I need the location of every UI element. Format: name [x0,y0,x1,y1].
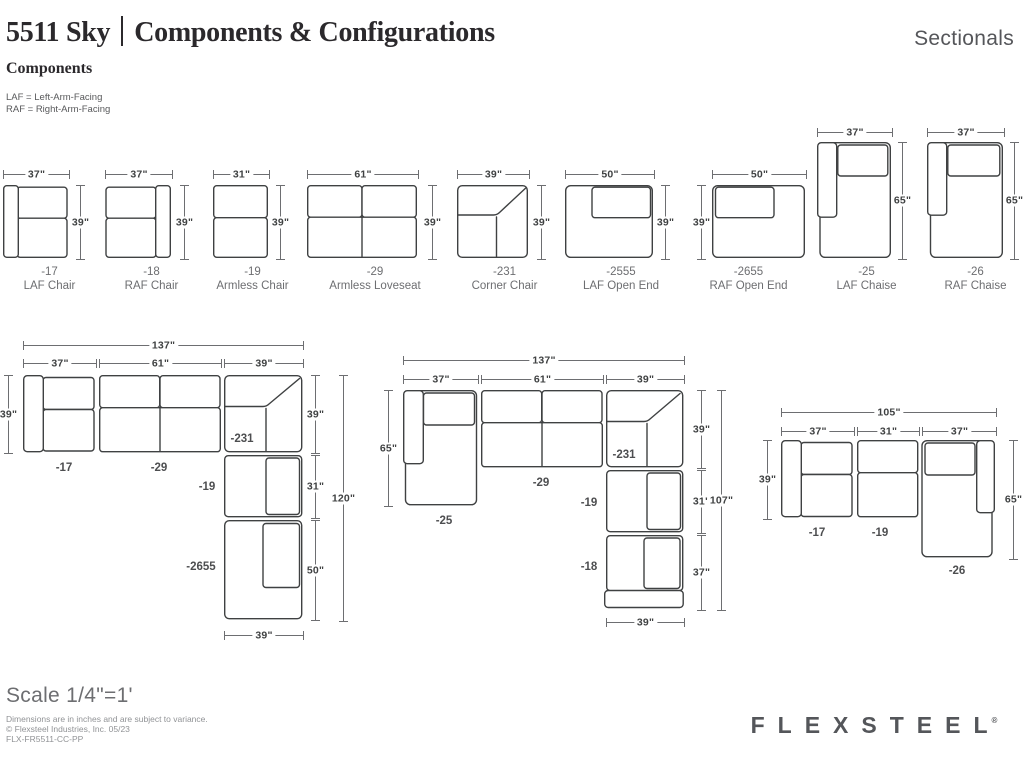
height-dim: 65" [1010,142,1019,260]
width-dim: 31" [213,170,270,179]
piece-label: -231 [230,433,253,445]
dim-label: 107" [707,494,736,506]
width-dim: 50" [712,170,807,179]
component-code: -2555 [565,265,677,279]
laf-chair-drawing [3,185,68,258]
dim-label: 120" [329,492,358,504]
dim-label: 137" [149,339,178,351]
dim-label: 65" [1002,494,1024,506]
page-title: Components & Configurations [134,17,495,48]
fine-print: Dimensions are in inches and are subject… [6,714,208,744]
component-code: -19 [213,265,292,279]
dim-label: 39" [634,373,657,385]
height-dim: 39" [661,185,670,260]
height-dim: 39" [180,185,189,260]
component-name: LAF Chair [3,279,96,293]
dim-label: 50" [304,564,327,576]
left-height-dim: 39" [763,440,772,520]
component-label: -29 Armless Loveseat [307,265,443,293]
piece-label: -26 [949,565,966,577]
dim-label: 31" [877,425,900,437]
dim-label: 37" [806,425,829,437]
width-dim: 39" [457,170,530,179]
scale-note: Scale 1/4"=1' [6,684,133,708]
component-name: RAF Open End [692,279,805,293]
width-dim: 61" [307,170,419,179]
height-dim: 39" [76,185,85,260]
legend-raf: RAF = Right-Arm-Facing [6,104,110,116]
dim-label: 39" [252,357,275,369]
dim-label: 37" [948,425,971,437]
piece-label: -17 [56,462,73,474]
height-dim: 39" [537,185,546,260]
component-name: RAF Chaise [927,279,1024,293]
bottom-width-dim: 39" [606,618,685,627]
component-label: -17 LAF Chair [3,265,96,293]
height-dim-label: 65" [1003,195,1024,207]
width-dim: 50" [565,170,655,179]
component-label: -2555 LAF Open End [565,265,677,293]
component-code: -29 [307,265,443,279]
component-code: -17 [3,265,96,279]
segment-dim: 39" [606,375,685,384]
total-width-dim: 105" [781,408,997,417]
dim-label: 61" [531,373,554,385]
total-width-dim: 137" [403,356,685,365]
category-label: Sectionals [914,27,1014,51]
height-dim: 39" [276,185,285,260]
corner-chair-drawing [457,185,528,258]
piece-label: -19 [581,497,598,509]
width-dim: 37" [927,128,1005,137]
piece-label: -29 [533,477,550,489]
component-label: -26 RAF Chaise [927,265,1024,293]
dim-label: 39" [304,408,327,420]
height-dim-label: 65" [891,195,914,207]
width-dim-label: 50" [748,168,771,180]
segment-dim: 61" [99,359,222,368]
piece-label: -231 [612,449,635,461]
width-dim: 37" [3,170,70,179]
width-dim-label: 50" [598,168,621,180]
component-name: Armless Loveseat [307,279,443,293]
height-dim-label: 39" [530,216,553,228]
right-height-dim: 50" [311,520,320,621]
component-name: RAF Chair [105,279,198,293]
dim-label: 39" [0,408,20,420]
piece-label: -18 [581,561,598,573]
component-label: -25 LAF Chaise [817,265,916,293]
configuration-3-drawing [781,440,995,558]
height-dim: 39" [697,185,706,260]
configuration-1: 137" 37" 61" 39" 39" -17 -29 [0,338,360,648]
piece-label: -29 [151,462,168,474]
legend-laf: LAF = Left-Arm-Facing [6,92,110,104]
width-dim: 37" [817,128,893,137]
registered-mark: ® [992,716,998,725]
piece-label: -2655 [186,561,215,573]
width-dim-label: 39" [482,168,505,180]
height-dim-label: 39" [421,216,444,228]
components-heading: Components [6,60,92,78]
component-code: -231 [457,265,552,279]
right-height-dim: 65" [1009,440,1018,560]
width-dim: 37" [105,170,173,179]
spec-sheet-page: 5511 SkyComponents & Configurations Sect… [0,0,1024,768]
right-height-dim: 37" [697,535,706,611]
dim-label: 31" [304,481,327,493]
height-dim-label: 39" [269,216,292,228]
dim-label: 39" [252,629,275,641]
dim-label: 61" [149,357,172,369]
bottom-width-dim: 39" [224,631,304,640]
disclaimer-line: Dimensions are in inches and are subject… [6,714,208,724]
total-width-dim: 137" [23,341,304,350]
segment-dim: 37" [922,427,997,436]
component-name: LAF Open End [565,279,677,293]
dim-label: 105" [874,406,903,418]
component-name: LAF Chaise [817,279,916,293]
piece-label: -25 [436,515,453,527]
flexsteel-logo: FLEXSTEEL® [735,712,1013,739]
segment-dim: 61" [481,375,604,384]
left-height-dim: 65" [384,390,393,507]
document-code: FLX-FR5511-CC-PP [6,734,208,744]
dim-label: 39" [690,423,713,435]
dim-label: 65" [377,442,400,454]
width-dim-label: 37" [25,168,48,180]
configuration-2-drawing [403,390,683,609]
width-dim-label: 37" [127,168,150,180]
component-label: -2655 RAF Open End [692,265,805,293]
model-number: 5511 Sky [6,17,110,48]
title-divider [121,16,123,46]
raf-chair-drawing [105,185,171,258]
height-dim-label: 39" [654,216,677,228]
raf-chaise-drawing [927,142,1003,258]
piece-label: -19 [872,527,889,539]
component-code: -25 [817,265,916,279]
left-height-dim: 39" [4,375,13,454]
right-height-dim: 31" [697,470,706,534]
armless-loveseat-drawing [307,185,417,258]
configuration-1-drawing [23,375,302,620]
height-dim-label: 39" [69,216,92,228]
dim-label: 37" [690,567,713,579]
width-dim-label: 61" [351,168,374,180]
piece-label: -17 [809,527,826,539]
component-name: Armless Chair [213,279,292,293]
height-dim: 65" [898,142,907,260]
piece-label: -19 [199,481,216,493]
width-dim-label: 37" [843,126,866,138]
laf-chaise-drawing [817,142,891,258]
component-label: -19 Armless Chair [213,265,292,293]
total-height-dim: 107" [717,390,726,611]
component-code: -18 [105,265,198,279]
copyright-line: © Flexsteel Industries, Inc. 05/23 [6,724,208,734]
dim-label: 37" [429,373,452,385]
component-name: Corner Chair [457,279,552,293]
logo-text: FLEXSTEEL [751,712,1001,738]
laf-open-end-drawing [565,185,653,258]
total-height-dim: 120" [339,375,348,622]
component-code: -2655 [692,265,805,279]
segment-dim: 37" [23,359,97,368]
right-height-dim: 39" [311,375,320,454]
width-dim-label: 31" [230,168,253,180]
dim-label: 39" [756,474,779,486]
width-dim-label: 37" [954,126,977,138]
dim-label: 137" [529,354,558,366]
right-height-dim: 31" [311,455,320,519]
component-label: -231 Corner Chair [457,265,552,293]
dim-label: 37" [48,357,71,369]
segment-dim: 37" [781,427,855,436]
raf-open-end-drawing [712,185,805,258]
segment-dim: 31" [857,427,920,436]
abbreviation-legend: LAF = Left-Arm-Facing RAF = Right-Arm-Fa… [6,92,110,115]
height-dim: 39" [428,185,437,260]
configuration-2: 137" 37" 61" 39" 65" -25 [370,350,742,640]
segment-dim: 39" [224,359,304,368]
component-label: -18 RAF Chair [105,265,198,293]
armless-chair-drawing [213,185,268,258]
component-code: -26 [927,265,1024,279]
configuration-3: 105" 37" 31" 37" 39" -17 -19 -26 65" [755,402,1024,587]
dim-label: 39" [634,616,657,628]
page-header: 5511 SkyComponents & Configurations [6,16,495,49]
height-dim-label: 39" [173,216,196,228]
right-height-dim: 39" [697,390,706,469]
segment-dim: 37" [403,375,479,384]
height-dim-label: 39" [690,216,713,228]
